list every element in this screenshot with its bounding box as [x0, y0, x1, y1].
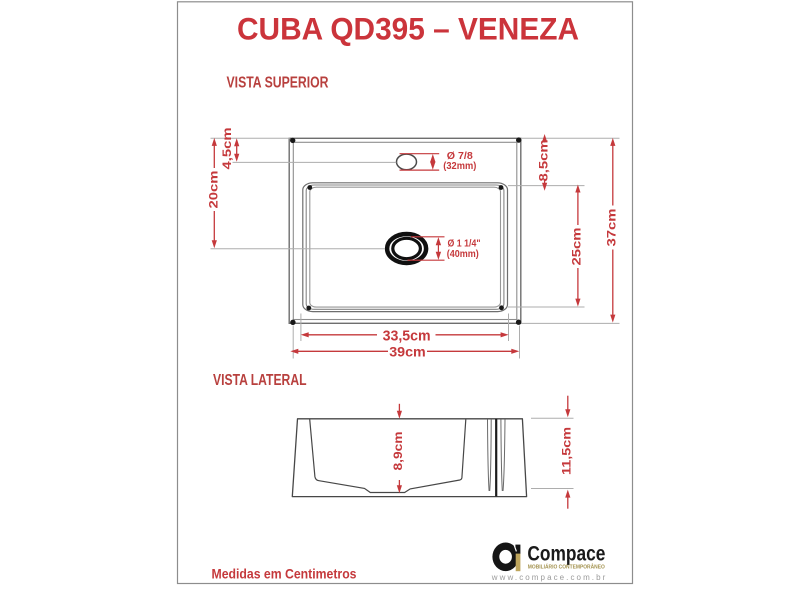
svg-text:11,5cm: 11,5cm	[559, 427, 573, 475]
svg-text:(32mm): (32mm)	[443, 160, 476, 172]
svg-text:39cm: 39cm	[389, 343, 426, 359]
svg-text:8,5cm: 8,5cm	[537, 140, 551, 182]
svg-text:CUBA QD395 – VENEZA: CUBA QD395 – VENEZA	[237, 11, 579, 47]
svg-text:8,9cm: 8,9cm	[391, 432, 405, 471]
svg-text:MOBILIÁRIO CONTEMPORÂNEO: MOBILIÁRIO CONTEMPORÂNEO	[528, 564, 606, 571]
svg-text:www.compace.com.br: www.compace.com.br	[491, 573, 606, 582]
svg-text:33,5cm: 33,5cm	[383, 327, 431, 344]
svg-text:37cm: 37cm	[605, 209, 619, 247]
svg-text:Compace: Compace	[527, 541, 605, 565]
svg-text:Medidas em Centimetros: Medidas em Centimetros	[212, 566, 357, 582]
svg-text:(40mm): (40mm)	[447, 248, 479, 260]
svg-text:4,5cm: 4,5cm	[220, 128, 234, 170]
svg-text:25cm: 25cm	[569, 228, 583, 266]
svg-text:VISTA SUPERIOR: VISTA SUPERIOR	[227, 75, 329, 92]
svg-text:VISTA LATERAL: VISTA LATERAL	[213, 372, 307, 389]
svg-text:20cm: 20cm	[206, 171, 220, 209]
